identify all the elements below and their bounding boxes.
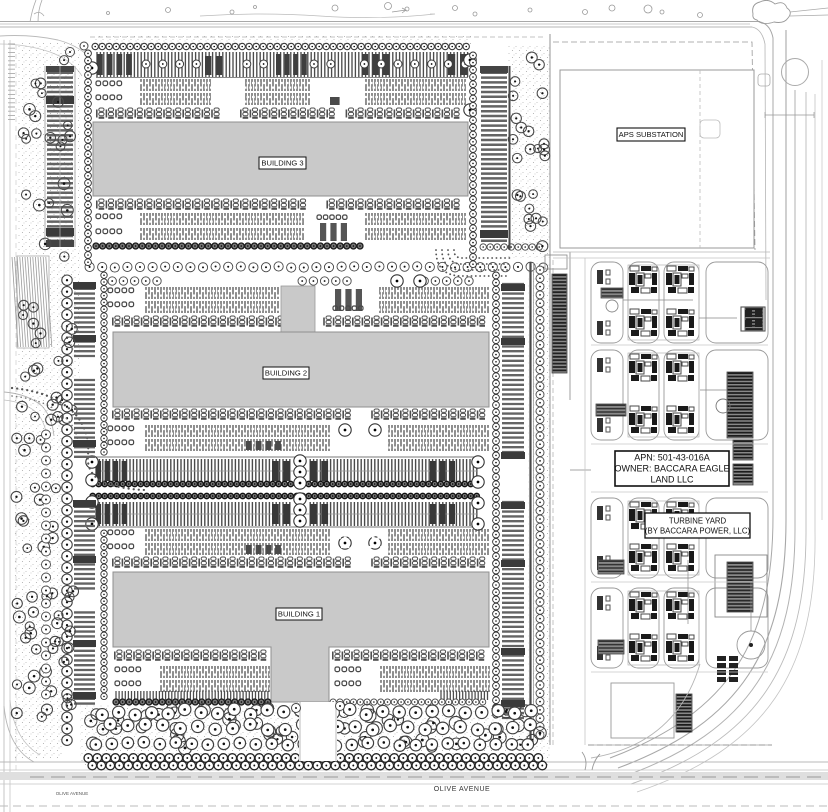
svg-text:APN: 501-43-016A: APN: 501-43-016A: [634, 453, 710, 463]
svg-text:BUILDING 3: BUILDING 3: [261, 159, 303, 168]
svg-text:(BY BACCARA POWER, LLC): (BY BACCARA POWER, LLC): [645, 526, 751, 535]
svg-text:TURBINE YARD: TURBINE YARD: [669, 516, 727, 525]
svg-text:OLIVE AVENUE: OLIVE AVENUE: [434, 786, 490, 793]
svg-text:OWNER: BACCARA EAGLE: OWNER: BACCARA EAGLE: [614, 464, 729, 474]
svg-text:LAND LLC: LAND LLC: [650, 475, 694, 485]
svg-text:BUILDING 2: BUILDING 2: [265, 369, 307, 378]
svg-text:OLIVE AVENUE: OLIVE AVENUE: [56, 791, 88, 796]
svg-text:APS SUBSTATION: APS SUBSTATION: [619, 130, 684, 139]
svg-text:BUILDING 1: BUILDING 1: [278, 610, 320, 619]
